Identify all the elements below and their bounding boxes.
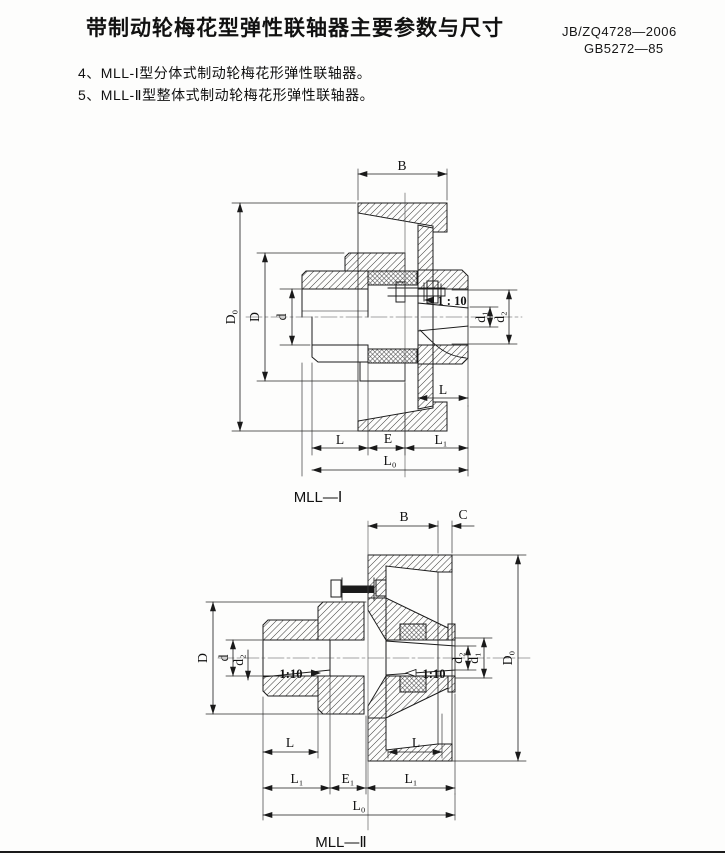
mll1-label-L-bottom: L (336, 432, 344, 447)
mll1-label-L0: L₀ (384, 453, 397, 468)
mll2-bolt-shank (342, 586, 374, 593)
mll2-label-d1: d₁ (466, 652, 481, 663)
mll2-taper-left-label: 1:10 (280, 667, 303, 681)
mll2-left-flange-top (318, 602, 364, 640)
mll2-label-d2-right: d₂ (450, 652, 465, 663)
mll2-label-L-right: L (412, 735, 420, 750)
mll2-label-D0: D₀ (500, 650, 515, 665)
mll1-label-d: d (274, 313, 289, 320)
mll1-brake-wheel-web-top (418, 225, 433, 270)
mll2-extension-lines (206, 521, 526, 820)
mll1-right-hub-bottom (418, 345, 468, 364)
mll2-dimension-lines (213, 526, 518, 815)
mll2-right-hub-end-top (448, 624, 455, 640)
mll2-label-L1-left: L₁ (291, 771, 304, 786)
mll1-label-D0: D₀ (223, 309, 238, 324)
mll1-label-L-right: L (439, 382, 447, 397)
mll2-left-flange-bottom (318, 676, 364, 714)
mll2-bolt-head (331, 580, 341, 597)
mll1-brake-wheel-web-bottom (418, 364, 433, 409)
mll1-caption: MLL—Ⅰ (294, 489, 343, 506)
mll1-taper-arrow-icon (424, 297, 434, 304)
mll2-label-d: d (216, 654, 231, 661)
mll2-label-D: D (195, 653, 210, 663)
mll2-dimension-labels: B C D d d₂ d₂ d₁ D₀ L L L₁ E₁ L₁ L₀ (195, 507, 515, 813)
mll1-brake-wheel-rim-top (358, 203, 447, 232)
mll2-left-hub-top (263, 620, 318, 640)
mll1-label-d2: d₂ (492, 311, 507, 322)
mll2-brake-wheel-rim-top (368, 555, 452, 598)
page-bottom-rule (0, 851, 725, 853)
mll2-taper-right-arrow-icon (406, 670, 416, 677)
mll2-label-C: C (458, 507, 467, 522)
mll2-caption: MLL—Ⅱ (315, 834, 367, 851)
mll2-taper-right-label: 1:10 (423, 667, 446, 681)
mll1-taper-label: 1 : 10 (437, 294, 466, 308)
mll1-label-D: D (247, 312, 262, 322)
mll1-label-E: E (384, 431, 392, 446)
mll1-drawing: 1 : 10 B D₀ D d d₁ d₂ L L E L₁ L₀ MLL—Ⅰ (223, 158, 522, 506)
mll2-right-hub-end-bottom (448, 676, 455, 692)
mll1-right-hub-top (418, 270, 468, 289)
document-page: 带制动轮梅花型弹性联轴器主要参数与尺寸 JB/ZQ4728—2006 GB527… (0, 0, 725, 855)
mll2-brake-wheel-rim-bottom (368, 718, 452, 761)
mll1-label-d1: d₁ (473, 311, 488, 322)
mll2-label-L1-right: L₁ (405, 771, 418, 786)
mll2-label-L0: L₀ (353, 798, 366, 813)
mll2-taper-left-arrow-icon (311, 670, 321, 677)
mll2-label-B: B (399, 509, 408, 524)
mll2-drawing: 1:10 1:10 B C D d d₂ d₂ d₁ D₀ L L L₁ E₁ … (195, 507, 530, 851)
mll2-label-L-left: L (286, 735, 294, 750)
mll2-label-E1: E₁ (342, 771, 355, 786)
mll2-label-d2-left: d₂ (231, 654, 246, 665)
mll1-brake-wheel-rim-bottom (358, 402, 447, 431)
technical-drawings: 1 : 10 B D₀ D d d₁ d₂ L L E L₁ L₀ MLL—Ⅰ (0, 0, 725, 855)
mll1-label-L1: L₁ (435, 432, 448, 447)
mll1-label-B: B (397, 158, 406, 173)
mll1-left-flange-top (345, 253, 405, 271)
